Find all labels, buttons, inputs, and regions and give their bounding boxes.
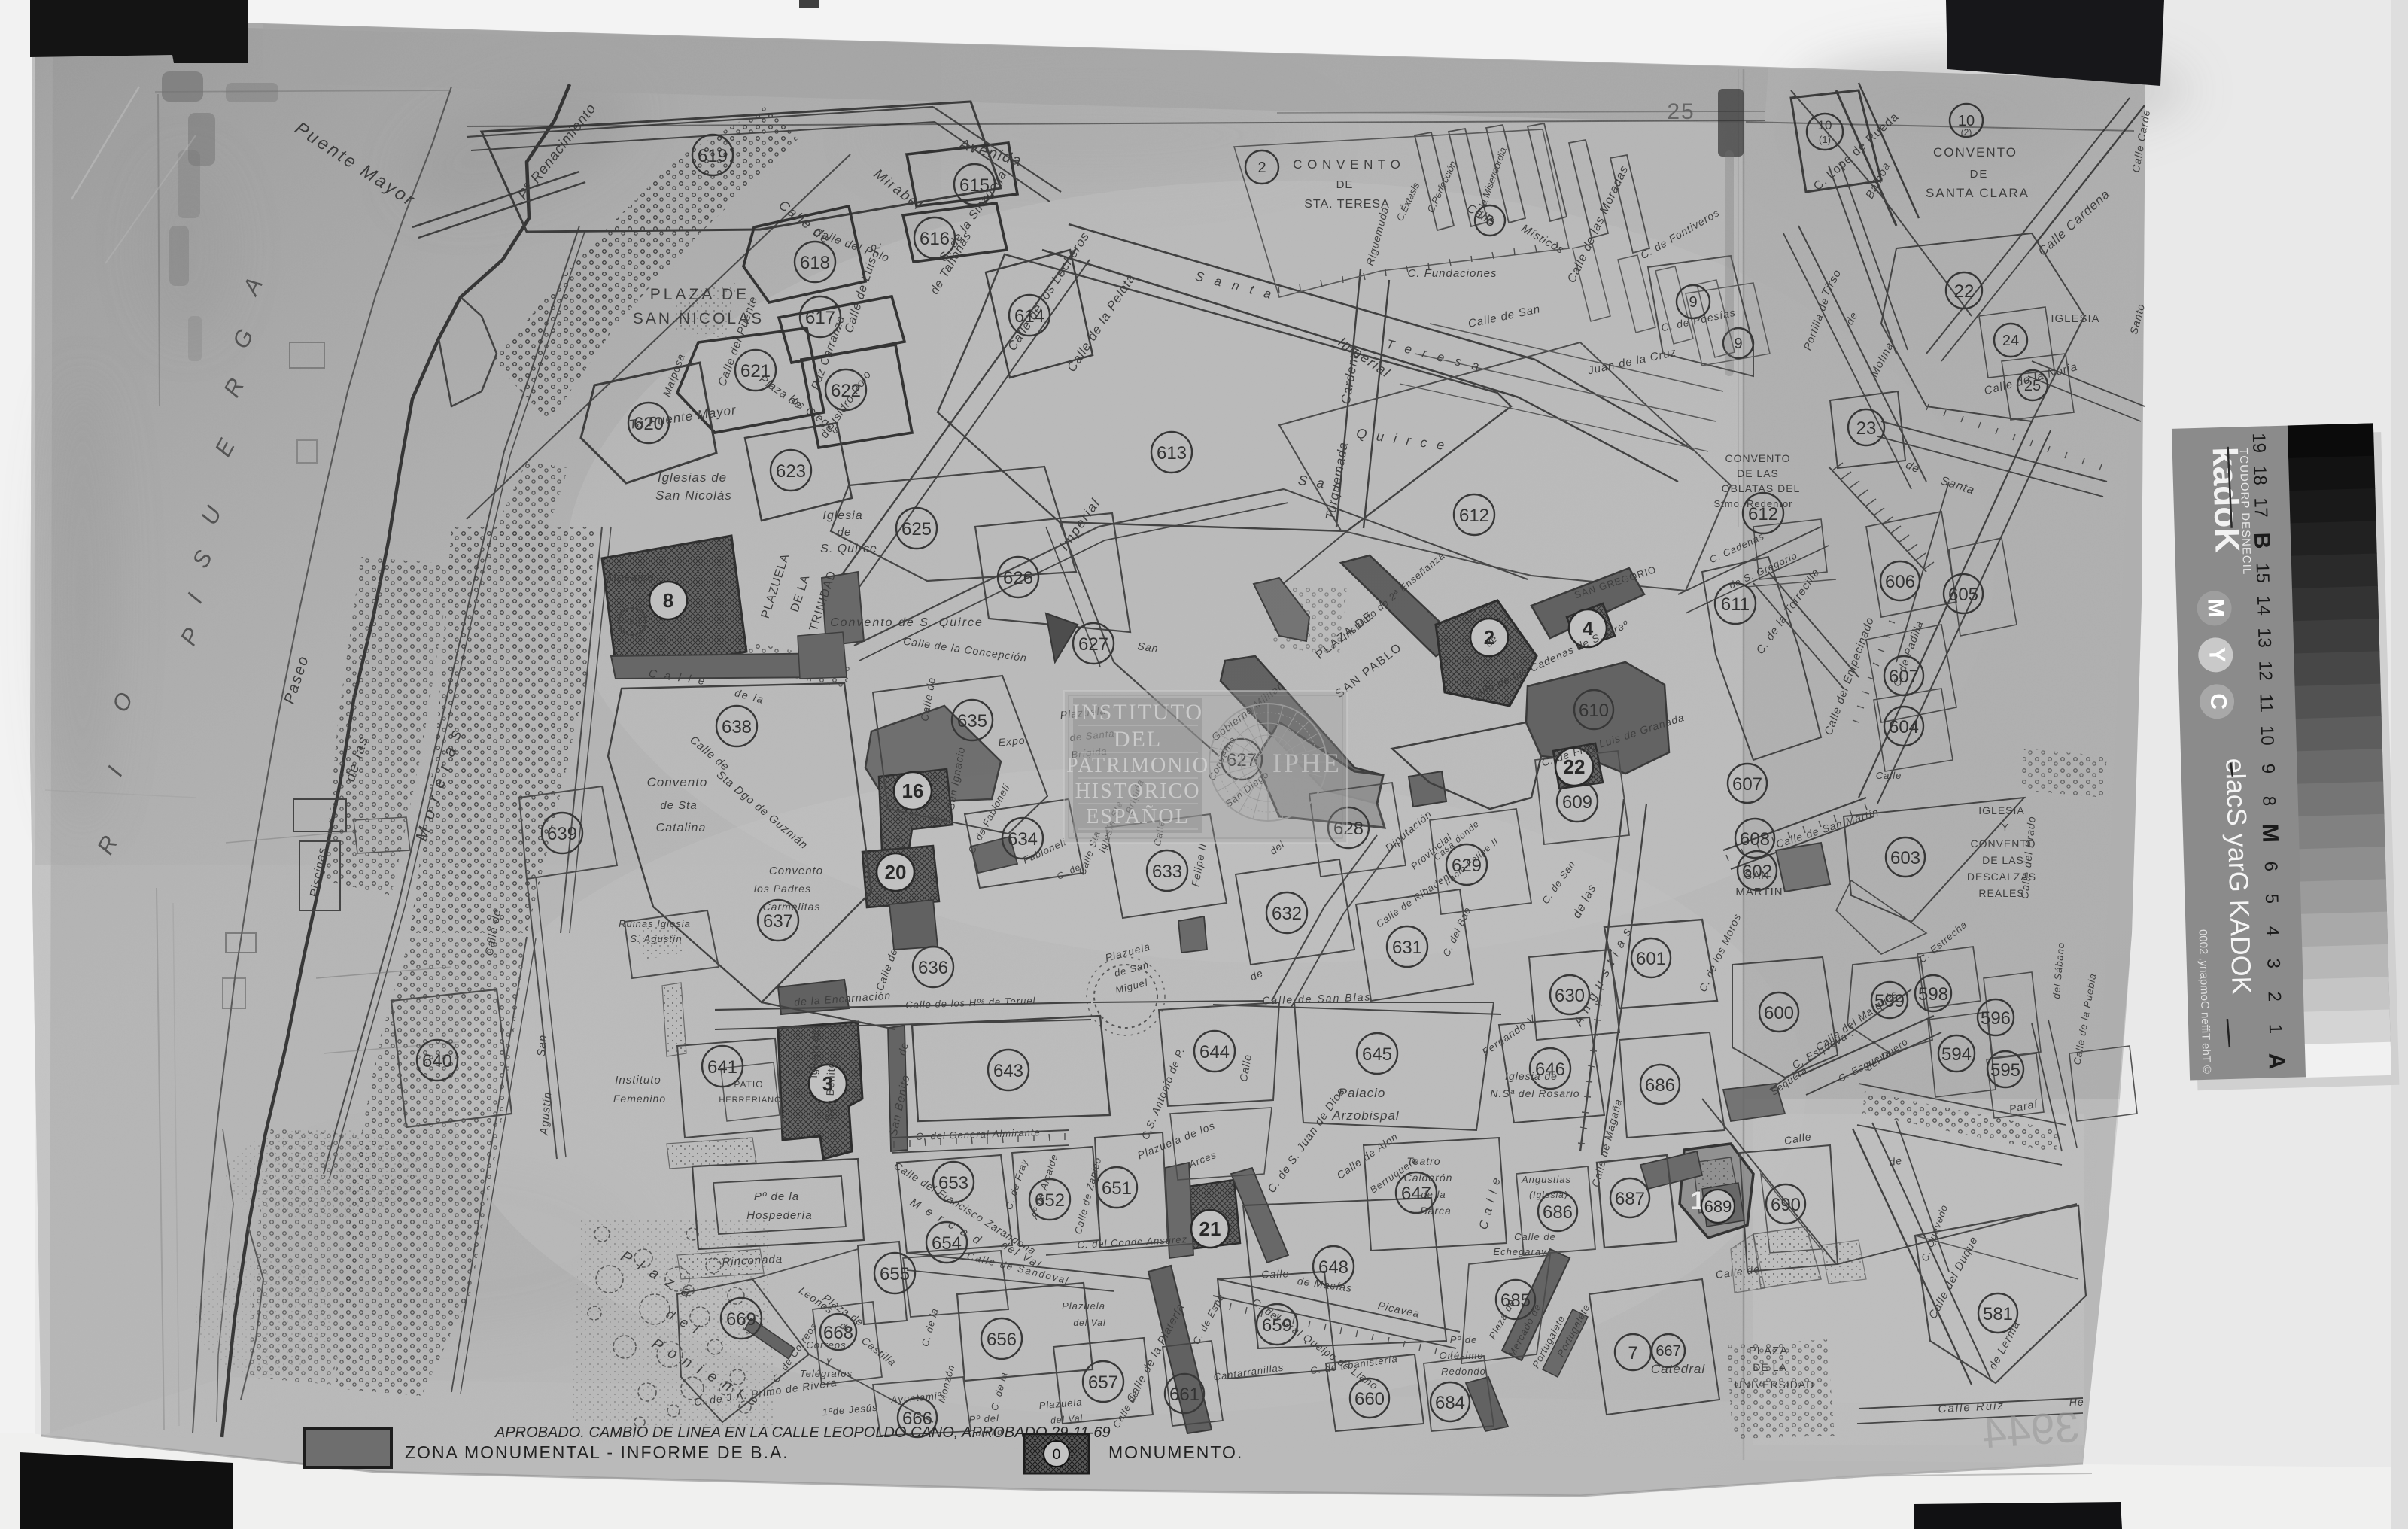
svg-text:634: 634: [1008, 829, 1038, 850]
svg-text:667: 667: [1655, 1343, 1680, 1360]
svg-text:de: de: [1888, 1154, 1903, 1169]
svg-text:9: 9: [1734, 336, 1742, 352]
svg-text:San Benito: San Benito: [823, 1061, 838, 1120]
svg-text:C: C: [2206, 693, 2231, 710]
svg-text:DE LAS: DE LAS: [1737, 467, 1779, 479]
svg-text:1: 1: [2265, 1023, 2285, 1034]
svg-text:HISTORICO: HISTORICO: [1075, 780, 1201, 803]
svg-text:los Padres: los Padres: [754, 883, 811, 895]
svg-text:8: 8: [2258, 795, 2279, 806]
svg-text:CONVENTO: CONVENTO: [1725, 452, 1790, 464]
svg-text:605: 605: [1948, 585, 1978, 605]
svg-text:2: 2: [2264, 991, 2285, 1002]
svg-text:19: 19: [2248, 433, 2270, 453]
svg-text:Stmo. Redentor: Stmo. Redentor: [1713, 498, 1792, 509]
svg-text:Y: Y: [2204, 647, 2230, 663]
svg-text:6: 6: [2261, 861, 2281, 871]
svg-text:12: 12: [2254, 661, 2276, 681]
svg-text:OBLATAS DEL: OBLATAS DEL: [1722, 482, 1801, 494]
svg-text:17: 17: [2250, 497, 2271, 518]
svg-text:DE: DE: [1970, 168, 1989, 181]
svg-text:613: 613: [1157, 443, 1187, 464]
svg-text:644: 644: [1199, 1042, 1230, 1062]
svg-text:de Sta: de Sta: [660, 799, 697, 812]
svg-text:IGLESIA: IGLESIA: [2051, 312, 2099, 325]
svg-text:N.Sª del Rosario: N.Sª del Rosario: [1490, 1087, 1579, 1099]
svg-text:635: 635: [957, 711, 987, 731]
svg-text:625: 625: [901, 519, 932, 540]
svg-text:645: 645: [1362, 1044, 1392, 1065]
svg-text:Convento de S. Quirce: Convento de S. Quirce: [830, 616, 984, 629]
svg-text:A: A: [2264, 1053, 2289, 1070]
svg-text:3944: 3944: [1981, 1403, 2081, 1458]
svg-text:596: 596: [1981, 1008, 2011, 1029]
svg-text:C O N V E N T O: C O N V E N T O: [1293, 157, 1401, 172]
svg-text:623: 623: [776, 461, 806, 482]
svg-text:618: 618: [800, 253, 830, 273]
svg-text:11: 11: [2255, 694, 2276, 713]
svg-text:687: 687: [1615, 1189, 1645, 1209]
svg-text:25: 25: [1667, 99, 1695, 124]
svg-text:686: 686: [1645, 1075, 1675, 1096]
svg-text:643: 643: [993, 1061, 1023, 1081]
svg-text:Echegaray: Echegaray: [1493, 1246, 1547, 1257]
svg-text:636: 636: [918, 958, 948, 978]
svg-text:611: 611: [1721, 594, 1750, 615]
svg-text:595: 595: [1990, 1060, 2020, 1081]
svg-text:627: 627: [1078, 634, 1108, 655]
svg-text:Calle: Calle: [1876, 770, 1902, 781]
svg-text:(1): (1): [1819, 134, 1831, 145]
svg-text:626: 626: [1003, 568, 1033, 588]
svg-text:Catedral: Catedral: [1651, 1362, 1705, 1376]
svg-text:Iglesia de: Iglesia de: [1505, 1070, 1558, 1082]
svg-text:638: 638: [722, 717, 752, 737]
svg-text:637: 637: [763, 911, 793, 932]
svg-text:Convento: Convento: [769, 865, 823, 877]
svg-text:CONVENTO: CONVENTO: [1933, 145, 2017, 160]
svg-text:669: 669: [726, 1309, 756, 1330]
svg-text:DE LAS: DE LAS: [1982, 854, 2024, 866]
svg-text:13: 13: [2254, 628, 2275, 648]
svg-text:689: 689: [1704, 1197, 1732, 1216]
svg-text:ESPAÑOL: ESPAÑOL: [1086, 805, 1189, 828]
svg-text:655: 655: [880, 1264, 910, 1284]
svg-text:610: 610: [1579, 701, 1609, 721]
svg-text:686: 686: [1543, 1202, 1573, 1223]
svg-text:PATRIMONIO: PATRIMONIO: [1066, 754, 1209, 777]
svg-text:IGLESIA: IGLESIA: [1978, 804, 2024, 816]
svg-text:606: 606: [1885, 572, 1915, 592]
svg-text:MONUMENTO.: MONUMENTO.: [1108, 1442, 1243, 1462]
svg-text:elacS yarG KADOK: elacS yarG KADOK: [2220, 758, 2257, 995]
svg-text:PLAZA: PLAZA: [1749, 1345, 1789, 1357]
svg-text:657: 657: [1088, 1372, 1118, 1393]
svg-text:Expo: Expo: [998, 734, 1026, 748]
svg-text:8: 8: [663, 589, 673, 612]
svg-text:Iglesia de: Iglesia de: [808, 1029, 821, 1078]
svg-text:Angustias: Angustias: [1521, 1174, 1571, 1185]
svg-text:607: 607: [1732, 774, 1762, 795]
svg-text:5: 5: [2261, 893, 2282, 904]
svg-text:9: 9: [1689, 294, 1697, 311]
svg-text:PLAZA DE: PLAZA DE: [650, 286, 749, 303]
svg-text:Redondo: Redondo: [1441, 1366, 1486, 1377]
svg-text:631: 631: [1392, 938, 1422, 958]
svg-text:684: 684: [1435, 1393, 1465, 1413]
svg-text:600: 600: [1764, 1003, 1794, 1023]
svg-text:Pº de: Pº de: [1450, 1334, 1478, 1345]
svg-text:de: de: [838, 526, 852, 539]
svg-text:15: 15: [2252, 563, 2273, 583]
svg-text:STA. TERESA: STA. TERESA: [1304, 198, 1390, 211]
svg-text:641: 641: [707, 1057, 737, 1078]
svg-text:Arzobispal: Arzobispal: [1331, 1108, 1400, 1123]
svg-text:SAN: SAN: [1744, 869, 1770, 882]
svg-text:651: 651: [1102, 1178, 1132, 1199]
svg-text:603: 603: [1890, 848, 1920, 868]
svg-text:7: 7: [1628, 1343, 1637, 1363]
svg-text:10: 10: [2257, 725, 2278, 746]
svg-text:660: 660: [1354, 1389, 1385, 1409]
svg-text:604: 604: [1889, 717, 1919, 737]
svg-text:MARTIN: MARTIN: [1735, 886, 1783, 898]
svg-text:Iglesias de: Iglesias de: [658, 470, 727, 485]
svg-text:del Val: del Val: [1073, 1318, 1105, 1328]
svg-text:Y: Y: [2002, 822, 2009, 833]
svg-text:Calle: Calle: [1261, 1267, 1289, 1280]
svg-text:DE: DE: [1336, 178, 1354, 191]
svg-text:Iglesia: Iglesia: [822, 509, 862, 522]
svg-text:Pº del: Pº del: [968, 1412, 999, 1425]
svg-text:S. Quirce: S. Quirce: [820, 543, 877, 555]
svg-text:609: 609: [1562, 792, 1592, 813]
svg-text:APROBADO. CAMBIO DE LINEA E: APROBADO. CAMBIO DE LINEA EN LA CALLE LE…: [494, 1424, 1111, 1441]
svg-text:22: 22: [1954, 281, 1975, 302]
svg-text:690: 690: [1771, 1195, 1801, 1215]
svg-text:Catalina: Catalina: [656, 822, 707, 834]
svg-text:Convento: Convento: [647, 775, 708, 789]
svg-text:Onésimo: Onésimo: [1439, 1350, 1483, 1361]
svg-text:694: 694: [623, 617, 641, 629]
svg-text:San: San: [535, 1034, 550, 1057]
svg-text:SANTA CLARA: SANTA CLARA: [1926, 186, 2029, 200]
svg-text:IPHE: IPHE: [1272, 748, 1342, 778]
svg-text:DEL: DEL: [1114, 727, 1162, 752]
svg-text:Barca: Barca: [1420, 1205, 1452, 1217]
svg-text:y: y: [826, 1355, 832, 1366]
svg-text:Pº de la: Pº de la: [754, 1190, 799, 1203]
svg-text:4: 4: [2262, 926, 2282, 936]
svg-text:0: 0: [1053, 1447, 1061, 1463]
svg-text:de la: de la: [1421, 1189, 1446, 1200]
svg-text:20: 20: [885, 861, 907, 883]
svg-text:24: 24: [2002, 333, 2019, 349]
svg-text:654: 654: [932, 1233, 962, 1254]
svg-text:581: 581: [1983, 1304, 2013, 1324]
svg-text:14: 14: [2253, 595, 2274, 616]
svg-text:C. Fundaciones: C. Fundaciones: [1407, 267, 1497, 280]
svg-text:16: 16: [902, 780, 924, 802]
svg-text:23: 23: [1856, 418, 1877, 439]
svg-text:619: 619: [698, 146, 728, 166]
svg-text:594: 594: [1941, 1044, 1972, 1065]
svg-text:Instituto: Instituto: [615, 1074, 661, 1087]
svg-text:661: 661: [1169, 1385, 1199, 1405]
svg-text:3: 3: [2263, 958, 2283, 968]
svg-text:INSTITUTO: INSTITUTO: [1072, 700, 1203, 725]
svg-text:632: 632: [1272, 904, 1302, 924]
svg-text:S. Agustín: S. Agustín: [630, 933, 683, 944]
svg-text:648: 648: [1318, 1257, 1348, 1278]
svg-text:(Iglesia): (Iglesia): [1529, 1190, 1568, 1200]
svg-text:Plazuela: Plazuela: [1062, 1300, 1105, 1312]
svg-text:M: M: [2203, 598, 2228, 618]
svg-text:DE LA: DE LA: [1753, 1361, 1786, 1373]
svg-text:639: 639: [547, 824, 577, 844]
svg-text:21: 21: [1199, 1217, 1221, 1240]
svg-text:ZONA MONUMENTAL - INFORME DE: ZONA MONUMENTAL - INFORME DE B.A.: [405, 1442, 789, 1462]
svg-text:612: 612: [1459, 506, 1489, 526]
svg-text:Hospedería: Hospedería: [746, 1209, 813, 1222]
svg-text:Carmelitas: Carmelitas: [763, 901, 821, 913]
svg-text:M: M: [2257, 823, 2283, 843]
svg-text:18: 18: [2249, 465, 2270, 485]
svg-text:Mosaico: Mosaico: [607, 571, 655, 584]
svg-text:656: 656: [987, 1330, 1017, 1350]
svg-text:Ruinas Iglesia: Ruinas Iglesia: [619, 918, 691, 929]
svg-text:San Nicolás: San Nicolás: [655, 488, 732, 503]
svg-text:10: 10: [1818, 118, 1832, 132]
svg-text:HERRERIANO: HERRERIANO: [719, 1096, 781, 1105]
svg-text:640: 640: [422, 1051, 452, 1072]
svg-text:UNIVERSIDAD: UNIVERSIDAD: [1735, 1379, 1815, 1391]
svg-text:(2): (2): [1961, 127, 1972, 138]
svg-text:PATIO: PATIO: [734, 1079, 763, 1090]
svg-text:Correos: Correos: [806, 1339, 846, 1351]
svg-text:598: 598: [1918, 984, 1948, 1005]
svg-text:9: 9: [2257, 763, 2278, 774]
svg-text:633: 633: [1152, 862, 1182, 882]
svg-text:2: 2: [1257, 160, 1266, 176]
svg-text:601: 601: [1636, 949, 1666, 969]
svg-text:Femenino: Femenino: [613, 1093, 666, 1105]
svg-text:Calle de: Calle de: [1514, 1231, 1556, 1242]
svg-text:Calderón: Calderón: [1404, 1172, 1453, 1184]
svg-text:608: 608: [1740, 829, 1770, 850]
